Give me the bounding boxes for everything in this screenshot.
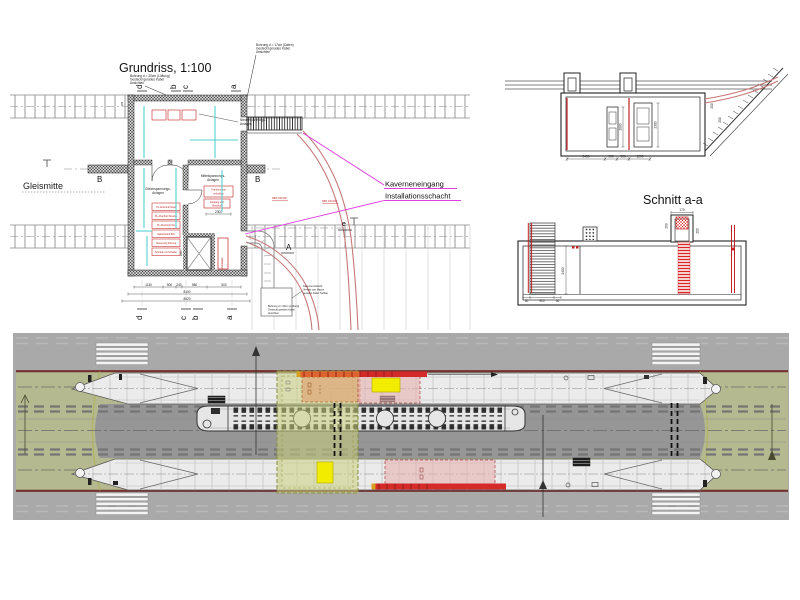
svg-text:2300: 2300: [654, 121, 658, 128]
grundriss-plan: Grundriss, 1:100 Bohrung d = 20cm (Lüftu…: [10, 43, 470, 330]
svg-text:Steuerung Störung: Steuerung Störung: [156, 242, 177, 245]
pink-zone-bottom: [385, 460, 495, 487]
svg-text:Ansichten: Ansichten: [268, 312, 280, 315]
building: Installation: [128, 95, 247, 276]
svg-text:c: c: [179, 316, 188, 320]
svg-text:PL-Abschnitt Ost: PL-Abschnitt Ost: [157, 224, 175, 227]
yellow-zone-top: [372, 378, 400, 392]
svg-text:200: 200: [718, 117, 722, 123]
svg-text:b: b: [169, 84, 178, 89]
querschnitt-section: 2000 2300 200 200 2450 900 900 1200: [505, 68, 788, 161]
svg-text:500: 500: [167, 283, 173, 287]
svg-text:900: 900: [608, 155, 614, 159]
svg-text:1200: 1200: [636, 155, 643, 159]
lageplan: [13, 333, 789, 520]
svg-text:8520: 8520: [183, 297, 190, 301]
svg-text:200: 200: [710, 103, 714, 109]
svg-text:2300: 2300: [215, 210, 222, 214]
svg-text:2450: 2450: [582, 155, 589, 159]
svg-text:Ansichten: Ansichten: [256, 50, 270, 54]
svg-text:900: 900: [620, 155, 626, 159]
svg-text:a: a: [225, 315, 234, 320]
track-lines: [505, 81, 772, 89]
svg-text:Abschluß: Abschluß: [212, 204, 223, 207]
svg-text:B: B: [255, 175, 260, 184]
schnitt-aa-section: Schnitt a-a 2400 170 200 200: [518, 193, 746, 305]
gleismitte-label: Gleismitte: [23, 181, 63, 191]
svg-text:980: 980: [192, 283, 198, 287]
svg-text:1600: 1600: [180, 250, 183, 256]
drawing-canvas: Grundriss, 1:100 Bohrung d = 20cm (Lüftu…: [0, 0, 800, 600]
svg-text:KBR 100/100: KBR 100/100: [322, 200, 337, 203]
svg-text:Transformator: Transformator: [211, 189, 226, 192]
train: [197, 406, 525, 431]
svg-text:Anlagen: Anlagen: [207, 178, 219, 182]
note-topleft: Bohrung d = 20cm (Lüftung) Gesteckt gera…: [130, 74, 170, 95]
svg-text:240: 240: [176, 283, 182, 287]
orange-zone: [302, 377, 360, 402]
svg-text:Installation: Installation: [221, 257, 224, 269]
kaverneneingang-label: Kaverneneingang: [385, 180, 444, 189]
kbr-labels: KBR 100/100 KBR 100/100: [272, 197, 338, 203]
installationsschacht-label: Installationsschacht: [385, 192, 451, 201]
svg-text:170: 170: [679, 208, 685, 212]
svg-text:200: 200: [665, 223, 669, 229]
svg-text:Schrank mit Schalter: Schrank mit Schalter: [155, 251, 177, 254]
chamber-outline: [561, 93, 705, 156]
marker-A: A: [286, 243, 292, 252]
svg-text:a: a: [229, 84, 238, 89]
svg-text:Anlagen: Anlagen: [240, 122, 252, 126]
svg-text:Stellschrank 5kV: Stellschrank 5kV: [157, 233, 175, 236]
svg-text:1130: 1130: [145, 283, 152, 287]
red-bar-top: [297, 372, 428, 378]
stairs: [530, 223, 555, 294]
svg-text:PL-Abschnitt Strecke: PL-Abschnitt Strecke: [155, 215, 178, 218]
svg-text:235: 235: [121, 101, 124, 106]
svg-text:e: e: [342, 221, 346, 228]
svg-text:KBR 100/100: KBR 100/100: [272, 197, 287, 200]
schnitt-title: Schnitt a-a: [643, 193, 703, 207]
svg-text:500: 500: [221, 283, 227, 287]
svg-text:d: d: [135, 316, 144, 320]
section-markers-top: d b c a: [135, 84, 241, 91]
svg-text:B: B: [97, 175, 102, 184]
svg-text:Anlagen: Anlagen: [152, 191, 164, 195]
svg-text:gerades Kabel Tiefbau: gerades Kabel Tiefbau: [303, 292, 329, 295]
svg-text:2000: 2000: [619, 123, 623, 130]
grundriss-title: Grundriss, 1:100: [119, 61, 211, 75]
note-schacht-1: Kavernenschacht Versatz von Masse gerade…: [292, 285, 329, 298]
svg-text:c: c: [181, 85, 190, 89]
svg-text:b: b: [191, 315, 200, 320]
svg-text:8100: 8100: [183, 290, 190, 294]
yellow-zone-bottom: [317, 462, 333, 483]
svg-text:200: 200: [696, 228, 700, 234]
svg-text:PL-Abschnitt West: PL-Abschnitt West: [156, 206, 176, 209]
red-bar-bottom: [372, 484, 507, 490]
section-markers-bottom: d c b a: [135, 309, 237, 320]
svg-text:d: d: [135, 85, 144, 89]
leader-labels: Kaverneneingang Installationsschacht: [245, 133, 461, 234]
shaft-red: [678, 242, 690, 294]
svg-text:900: 900: [539, 299, 545, 303]
svg-text:2400: 2400: [561, 267, 565, 274]
svg-text:50: 50: [525, 299, 529, 303]
svg-text:50: 50: [556, 299, 560, 303]
